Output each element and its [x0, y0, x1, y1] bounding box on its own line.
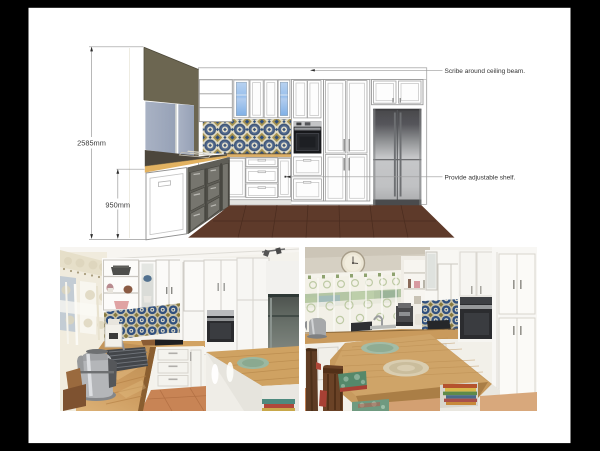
svg-text:Scribe around ceiling beam.: Scribe around ceiling beam. [445, 68, 526, 75]
svg-text:Provide adjustable shelf.: Provide adjustable shelf. [445, 175, 516, 182]
svg-text:2585mm: 2585mm [77, 138, 106, 147]
svg-text:950mm: 950mm [105, 200, 130, 209]
